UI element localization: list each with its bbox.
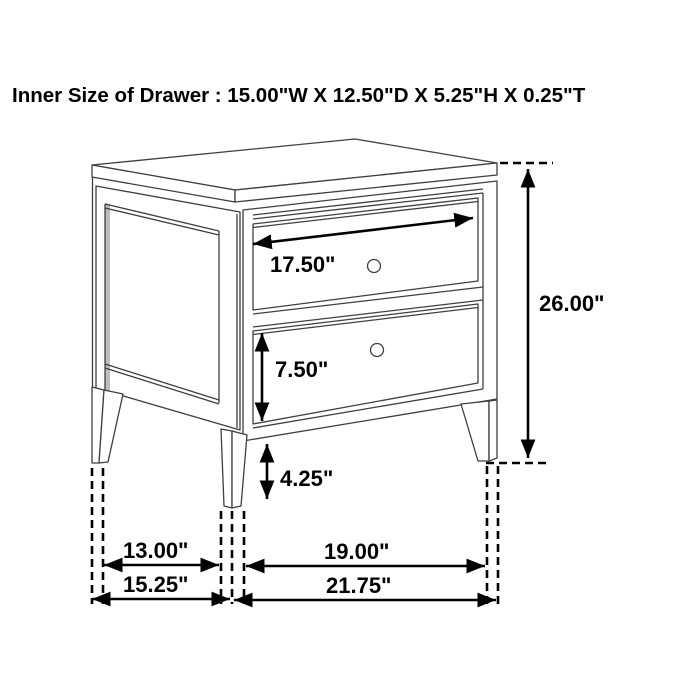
drawer-bottom-knob <box>371 344 384 357</box>
dim-label-overall-height: 26.00" <box>539 291 604 316</box>
dim-label-overall-width: 21.75" <box>326 573 391 598</box>
front-left-leg <box>221 429 247 508</box>
nightstand-diagram: 17.50" 7.50" 4.25" 26.00" 13.00" 15.25" … <box>0 0 700 700</box>
dim-label-lower-drawer: 7.50" <box>275 357 328 382</box>
front-right-leg <box>461 400 497 461</box>
dim-label-side-legs: 13.00" <box>123 538 188 563</box>
dim-label-drawer-width: 17.50" <box>270 252 335 277</box>
dim-label-overall-depth: 15.25" <box>123 572 188 597</box>
dimension-diagram-page: Inner Size of Drawer : 15.00"W X 12.50"D… <box>0 0 700 700</box>
nightstand-drawing <box>92 139 497 508</box>
dim-label-leg-height: 4.25" <box>280 466 333 491</box>
dim-label-front-legs: 19.00" <box>324 539 389 564</box>
back-left-leg <box>92 387 123 463</box>
drawer-top-knob <box>368 260 381 273</box>
